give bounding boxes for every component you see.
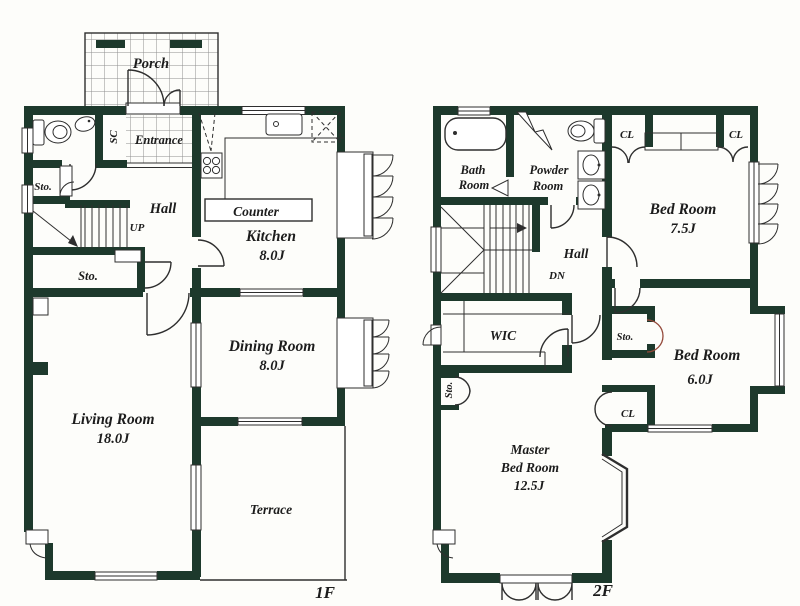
cl-label-2: CL [729, 129, 743, 141]
stairs-1f [33, 205, 127, 248]
bed2-size-label: 6.0J [687, 372, 713, 388]
corner-notch-1f [26, 530, 48, 558]
entrance-label: Entrance [134, 133, 183, 147]
powder-folding-door-icon [517, 112, 552, 150]
sto-left-label: Sto. [444, 382, 455, 399]
master-label-1: Master [509, 442, 550, 457]
toilet-icon [33, 120, 71, 145]
bathtub-icon [445, 118, 506, 150]
cl-label-3: CL [621, 408, 635, 420]
sc-label: SC [108, 130, 120, 144]
hall-2f-label: Hall [563, 246, 589, 261]
floor-2-plan: Bath Room Powder Room CL CL CL Bed Room … [423, 106, 785, 600]
bath-door-icon [492, 180, 508, 196]
wic-label: WIC [490, 328, 517, 343]
kitchen-label: Kitchen [245, 228, 296, 245]
bay-window-kitchen [337, 152, 393, 239]
sto-lower-label: Sto. [78, 269, 98, 283]
floorplan-page: Porch SC Entrance Sto. Hall UP Sto. Coun… [0, 0, 800, 606]
up-label: UP [130, 222, 145, 234]
floor-1-label: 1F [315, 583, 336, 602]
master-label-2: Bed Room [500, 460, 559, 475]
bed1-closet-front [645, 133, 718, 150]
bath-label-2: Room [458, 178, 490, 192]
cl-label-1: CL [620, 129, 634, 141]
floor-1-plan: Porch SC Entrance Sto. Hall UP Sto. Coun… [22, 33, 393, 602]
stove-icon [199, 113, 222, 178]
bed1-size-label: 7.5J [670, 221, 696, 237]
hand-sink-icon [74, 115, 97, 134]
floor-2-label: 2F [592, 581, 614, 600]
storage-slot [115, 250, 141, 262]
kitchen-size-label: 8.0J [259, 248, 285, 264]
dn-label: DN [548, 270, 566, 282]
living-wall-piers [33, 298, 48, 375]
kitchen-sink-icon [266, 114, 302, 135]
dining-size-label: 8.0J [259, 358, 285, 374]
floorplan-drawing: Porch SC Entrance Sto. Hall UP Sto. Coun… [0, 0, 800, 606]
bath-label-1: Bath [459, 163, 485, 177]
master-size-label: 12.5J [514, 478, 546, 493]
hall-1f-label: Hall [149, 201, 177, 217]
terrace-label: Terrace [250, 502, 292, 517]
sto-6j-label: Sto. [617, 332, 634, 343]
sto-upper-label: Sto. [34, 181, 51, 193]
bay-window-dining [337, 318, 389, 388]
dining-label: Dining Room [228, 338, 316, 355]
french-doors-master [500, 575, 572, 600]
living-size-label: 18.0J [97, 431, 130, 447]
toilet-2f-icon [568, 119, 605, 143]
stairs-2f [441, 205, 532, 293]
counter-label: Counter [233, 204, 280, 219]
powder-label-1: Powder [530, 163, 569, 177]
powder-label-2: Room [532, 179, 564, 193]
porch-label: Porch [133, 56, 169, 72]
bay-window-master [602, 454, 627, 542]
bed2-label: Bed Room [673, 347, 741, 364]
bed1-label: Bed Room [649, 201, 717, 218]
living-label: Living Room [70, 411, 154, 428]
double-sink-icon [578, 151, 605, 209]
